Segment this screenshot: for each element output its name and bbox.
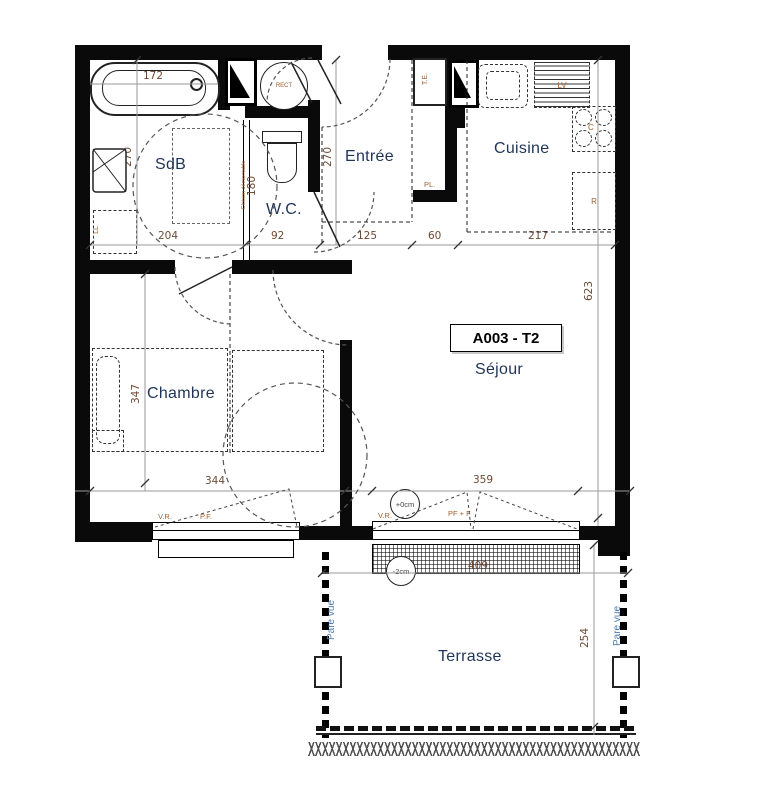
bed-clearance: [232, 350, 324, 452]
dim-chambre-width: 344: [205, 475, 225, 487]
terrace-post-left: [314, 656, 342, 688]
dishwasher: LV: [534, 62, 590, 108]
water-heater: RECT: [260, 62, 308, 110]
terrace-edge: [316, 726, 634, 731]
dim-terrasse-depth: 254: [579, 618, 591, 658]
pare-vue-left-screen: [322, 552, 329, 738]
wall-outer-left: [75, 45, 90, 540]
dim-closet-width: 60: [428, 230, 441, 242]
dim-chambre-depth: 347: [130, 374, 142, 414]
wall-mid-left: [75, 260, 175, 274]
level-outside-badge: -2cm: [386, 556, 416, 586]
chambre-window-label: P.F.: [200, 512, 212, 521]
water-heater-label: RECT: [276, 83, 292, 89]
dim-wc-width: 92: [271, 230, 284, 242]
dim-terrasse-width: 409: [468, 560, 488, 572]
toilet-tank: [262, 131, 302, 143]
wall-chambre-sejour: [340, 340, 352, 526]
room-label-wc: W.C.: [266, 201, 302, 219]
wall-outer-top-left: [75, 45, 322, 60]
fridge-label: R: [591, 197, 597, 206]
terrace-edge-line: [316, 733, 636, 735]
dim-entree-depth: 270: [322, 137, 334, 177]
dim-sejour-depth: 623: [583, 271, 595, 311]
wall-bottom-mid: [298, 526, 372, 540]
vegetation-border: [308, 736, 640, 756]
chambre-shutter-label: V.R.: [158, 512, 172, 521]
dim-sejour-window-width: 359: [473, 474, 493, 486]
wall-bottom-left: [75, 522, 152, 542]
kitchen-duct-triangle-icon: [454, 66, 471, 98]
washing-machine-label: LL: [93, 216, 103, 244]
room-label-sejour: Séjour: [475, 361, 523, 379]
level-inside-label: +0cm: [396, 500, 415, 509]
dishwasher-label: LV: [557, 81, 566, 90]
level-outside-label: -2cm: [393, 567, 410, 576]
kitchen-sink-inner: [486, 71, 520, 100]
sejour-window-label: PF + F: [448, 509, 471, 518]
chambre-window-sill: [158, 540, 294, 558]
room-label-sdb: SdB: [155, 156, 186, 174]
dim-sdb-depth: 270: [122, 137, 134, 177]
dim-entree-width: 125: [357, 230, 377, 242]
floor-plan: 172 RECT LL Cloison démontable T.E. PL. …: [0, 0, 783, 800]
burner-icon: [575, 130, 592, 147]
room-label-chambre: Chambre: [147, 385, 215, 403]
cooktop: C: [572, 106, 616, 152]
level-inside-badge: +0cm: [390, 489, 420, 519]
wall-mid-right: [232, 260, 352, 274]
nightstand: [92, 430, 124, 452]
wall-wc-entree: [308, 100, 320, 192]
wall-outer-right: [615, 45, 630, 540]
duct-triangle-icon: [230, 64, 250, 98]
cooktop-label: C: [588, 123, 594, 132]
sejour-window: [372, 521, 580, 540]
burner-icon: [595, 130, 612, 147]
burner-icon: [595, 109, 612, 126]
dim-bathtub: 172: [143, 70, 163, 82]
kitchen-duct-icon: [449, 60, 479, 108]
fridge: R: [572, 172, 616, 230]
bathtub-drain: [190, 78, 203, 91]
dim-cuisine-width: 217: [528, 230, 548, 242]
dim-wc-depth: 180: [246, 166, 258, 206]
wall-closet-bottom: [413, 190, 457, 202]
toilet-bowl: [267, 143, 297, 183]
pare-vue-right-label: Pare vue: [612, 601, 624, 651]
dim-sdb-width: 204: [158, 230, 178, 242]
chambre-window: [152, 522, 300, 540]
electrical-label: T.E.: [422, 65, 432, 93]
room-label-cuisine: Cuisine: [494, 140, 549, 158]
closet-label: PL.: [424, 180, 435, 189]
duct-icon: [225, 58, 257, 106]
pare-vue-left-label: Pare vue: [326, 595, 338, 645]
unit-title-badge: A003 - T2: [450, 324, 562, 352]
terrace-post-right: [612, 656, 640, 688]
room-label-terrasse: Terrasse: [438, 648, 502, 666]
sejour-shutter-label: V.R.: [378, 511, 392, 520]
unit-title: A003 - T2: [473, 330, 540, 347]
room-label-entree: Entrée: [345, 148, 394, 166]
sdb-clearance-box: [172, 128, 230, 224]
